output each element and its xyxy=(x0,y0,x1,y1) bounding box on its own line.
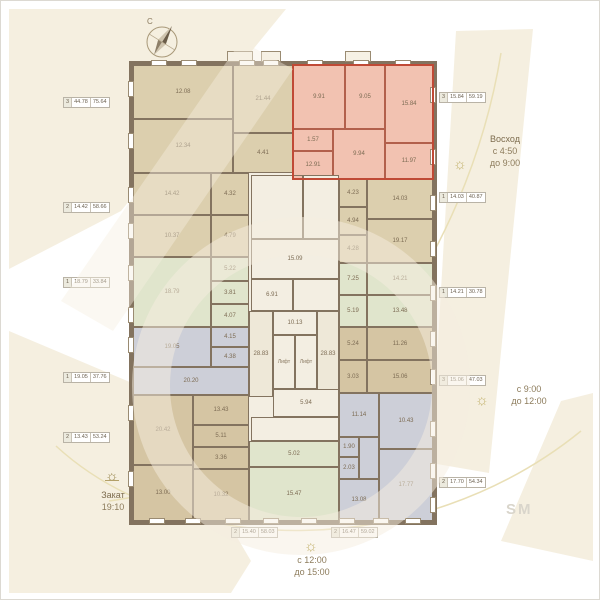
window-mark xyxy=(430,195,436,211)
apt-left-3-room-18.79[interactable]: 18.79 xyxy=(133,257,211,327)
unit-info-chip: 118.7933.84 xyxy=(63,277,110,288)
room-area-label: 19.17 xyxy=(392,238,407,244)
unit-info-cell: 18.79 xyxy=(71,278,90,287)
window-mark xyxy=(128,223,134,239)
window-mark xyxy=(128,265,134,281)
core-room-15.09: 15.09 xyxy=(251,239,339,279)
unit-info-chip: 315.0647.03 xyxy=(439,375,486,386)
apt-bottom-right-room-13.08[interactable]: 13.08 xyxy=(339,479,379,521)
room-area-label: 12.08 xyxy=(175,89,190,95)
window-mark xyxy=(395,60,411,66)
unit-info-cell: 2 xyxy=(64,433,71,442)
unit-info-cell: 13.43 xyxy=(71,433,90,442)
apt-bottom-left-room-13.00[interactable]: 13.00 xyxy=(133,465,193,521)
sunrise-to: до 9:00 xyxy=(469,157,541,169)
apt-bottom-left-room-10.32[interactable]: 10.32 xyxy=(193,469,249,521)
window-mark xyxy=(263,518,279,524)
unit-info-chip: 213.4353.24 xyxy=(63,432,110,443)
apt-left-2-room-4.32[interactable]: 4.32 xyxy=(211,173,249,215)
window-mark xyxy=(225,518,241,524)
room-area-label: 5.11 xyxy=(215,433,226,439)
apt-right-2-room-19.17[interactable]: 19.17 xyxy=(367,219,433,263)
window-mark xyxy=(430,497,436,513)
apt-top-left-room-4.41[interactable]: 4.41 xyxy=(233,133,293,173)
unit-info-cell: 2 xyxy=(332,528,339,537)
unit-info-chip: 114.2130.78 xyxy=(439,287,486,298)
apt-bottom-right-room[interactable] xyxy=(359,437,379,479)
apt-right-4-room-5.24[interactable]: 5.24 xyxy=(339,327,367,360)
unit-info-cell: 15.06 xyxy=(447,376,466,385)
unit-info-cell: 17.70 xyxy=(447,478,466,487)
window-mark xyxy=(239,60,255,66)
apt-right-2-room-14.03[interactable]: 14.03 xyxy=(367,179,433,219)
apt-right-3-room-13.48[interactable]: 13.48 xyxy=(367,295,433,327)
sun-icon: ☼ xyxy=(453,157,467,172)
apt-bottom-right-room-17.77[interactable]: 17.77 xyxy=(379,449,433,521)
unit-info-chip: 344.7875.64 xyxy=(63,97,110,108)
core-room-28.83: 28.83 xyxy=(317,311,339,397)
apt-bottom-left-room-20.42[interactable]: 20.42 xyxy=(133,395,193,465)
core-room-28.83: 28.83 xyxy=(249,311,273,397)
window-mark xyxy=(405,518,421,524)
room-area-label: 10.43 xyxy=(398,418,413,424)
apt-right-2-room-4.94[interactable]: 4.94 xyxy=(339,207,367,235)
core-room-Лифт: Лифт xyxy=(295,335,317,389)
room-area-label: 3.81 xyxy=(224,290,236,296)
apt-bottom-right-room-2.03[interactable]: 2.03 xyxy=(339,457,359,479)
unit-info-cell: 1 xyxy=(440,288,447,297)
sunset-title: Закат xyxy=(85,489,141,501)
unit-info-cell: 47.03 xyxy=(466,376,485,385)
room-area-label: 18.79 xyxy=(164,289,179,295)
unit-info-chip: 215.4058.03 xyxy=(231,527,278,538)
core-room xyxy=(251,417,339,441)
room-area-label: 20.20 xyxy=(183,378,198,384)
window-mark xyxy=(128,81,134,97)
unit-info-chip: 216.4759.02 xyxy=(331,527,378,538)
unit-info-cell: 44.78 xyxy=(71,98,90,107)
apt-left-4-room-19.05[interactable]: 19.05 xyxy=(133,327,211,367)
room-area-label: 28.83 xyxy=(320,351,335,357)
room-area-label: 13.00 xyxy=(155,490,170,496)
unit-info-cell: 40.87 xyxy=(466,193,485,202)
apt-right-2-room-4.23[interactable]: 4.23 xyxy=(339,179,367,207)
brand-watermark: SM xyxy=(506,501,533,518)
window-mark xyxy=(128,133,134,149)
room-area-label: 5.22 xyxy=(224,266,236,272)
window-mark xyxy=(149,518,165,524)
unit-info-cell: 3 xyxy=(440,93,447,102)
core-room-Лифт: Лифт xyxy=(273,335,295,389)
apt-bottom-left-room-3.36[interactable]: 3.36 xyxy=(193,447,249,469)
core-room-5.94: 5.94 xyxy=(273,389,339,417)
room-area-label: 11.26 xyxy=(393,341,408,347)
room-area-label: 4.23 xyxy=(347,190,359,196)
room-area-label: 7.25 xyxy=(347,276,359,282)
unit-info-cell: 14.03 xyxy=(447,193,466,202)
room-area-label: 3.36 xyxy=(215,455,227,461)
unit-info-cell: 54.34 xyxy=(466,478,485,487)
unit-info-cell: 2 xyxy=(440,478,447,487)
window-mark xyxy=(263,60,279,66)
window-mark xyxy=(430,463,436,479)
unit-info-cell: 15.40 xyxy=(239,528,258,537)
apt-left-2-room-10.37[interactable]: 10.37 xyxy=(133,215,211,257)
room-area-label: 13.48 xyxy=(392,308,407,314)
window-mark xyxy=(128,307,134,323)
core-room-6.91: 6.91 xyxy=(251,279,293,311)
window-mark xyxy=(185,518,201,524)
unit-info-chip: 315.8459.19 xyxy=(439,92,486,103)
unit-info-cell: 33.84 xyxy=(90,278,109,287)
window-mark xyxy=(430,331,436,347)
unit-info-cell: 2 xyxy=(64,203,71,212)
room-area-label: 4.07 xyxy=(224,313,236,319)
apt-top-right-highlighted-room-11.97[interactable]: 11.97 xyxy=(385,143,433,179)
apt-left-2-room-14.42[interactable]: 14.42 xyxy=(133,173,211,215)
unit-info-cell: 30.78 xyxy=(466,288,485,297)
room-area-label: 4.32 xyxy=(224,191,236,197)
unit-info-cell: 1 xyxy=(64,373,71,382)
room-area-label: 9.94 xyxy=(353,151,365,157)
window-mark xyxy=(353,60,369,66)
unit-info-chip: 214.4258.66 xyxy=(63,202,110,213)
room-area-label: 12.91 xyxy=(305,162,320,168)
north-label: С xyxy=(147,17,153,26)
unit-info-cell: 58.66 xyxy=(90,203,109,212)
noon-from: с 12:00 xyxy=(276,554,348,566)
unit-info-chip: 119.0537.76 xyxy=(63,372,110,383)
apt-left-3-room-4.07[interactable]: 4.07 xyxy=(211,304,249,327)
unit-info-cell: 15.84 xyxy=(447,93,466,102)
room-area-label: 5.02 xyxy=(288,451,300,457)
unit-info-cell: 75.64 xyxy=(90,98,109,107)
apt-bottom-right-room-1.90[interactable]: 1.90 xyxy=(339,437,359,457)
apt-top-left-room-21.44[interactable]: 21.44 xyxy=(233,65,293,133)
apt-left-4-room-4.15[interactable]: 4.15 xyxy=(211,327,249,347)
apt-top-right-highlighted-room-9.91[interactable]: 9.91 xyxy=(293,65,345,129)
room-area-label: 14.03 xyxy=(392,196,407,202)
room-area-label: 5.24 xyxy=(347,341,359,347)
unit-info-cell: 53.24 xyxy=(90,433,109,442)
window-mark xyxy=(430,285,436,301)
sunset-time: 19:10 xyxy=(85,501,141,513)
core-room xyxy=(251,175,303,239)
unit-info-cell: 58.03 xyxy=(258,528,277,537)
apt-left-2-room-4.79[interactable]: 4.79 xyxy=(211,215,249,257)
apt-top-right-highlighted-room-9.94[interactable]: 9.94 xyxy=(333,129,385,179)
window-mark xyxy=(430,87,436,103)
unit-info-cell: 3 xyxy=(64,98,71,107)
unit-info-cell: 3 xyxy=(440,376,447,385)
apt-top-left-room-12.34[interactable]: 12.34 xyxy=(133,119,233,173)
apt-right-2-room-4.28[interactable]: 4.28 xyxy=(339,235,367,263)
room-area-label: 9.05 xyxy=(359,94,371,100)
room-area-label: 15.84 xyxy=(401,101,416,107)
window-mark xyxy=(373,518,389,524)
unit-info-chip: 114.0340.87 xyxy=(439,192,486,203)
room-area-label: 14.21 xyxy=(392,276,407,282)
room-area-label: 3.03 xyxy=(347,374,359,380)
unit-info-cell: 1 xyxy=(64,278,71,287)
morning-sun-annotation: ☼ с 9:00 до 12:00 xyxy=(497,383,561,407)
room-area-label: 1.90 xyxy=(343,444,355,450)
room-area-label: 6.91 xyxy=(266,292,278,298)
room-area-label: 5.94 xyxy=(300,400,312,406)
sunrise-annotation: ☼ Восход с 4:50 до 9:00 xyxy=(469,133,541,169)
apt-right-3-room-14.21[interactable]: 14.21 xyxy=(367,263,433,295)
window-mark xyxy=(430,369,436,385)
room-area-label: 15.47 xyxy=(286,491,301,497)
unit-info-cell: 14.21 xyxy=(447,288,466,297)
room-area-label: 13.08 xyxy=(351,497,366,503)
window-mark xyxy=(430,149,436,165)
room-area-label: 17.77 xyxy=(398,482,413,488)
apt-bottom-left-room-5.11[interactable]: 5.11 xyxy=(193,425,249,447)
room-area-label: 10.13 xyxy=(287,320,302,326)
room-area-label: 1.57 xyxy=(307,137,319,143)
room-area-label: 14.42 xyxy=(164,191,179,197)
apt-top-left-room-12.08[interactable]: 12.08 xyxy=(133,65,233,119)
window-mark xyxy=(128,187,134,203)
room-area-label: 20.42 xyxy=(155,427,170,433)
core-room xyxy=(303,175,339,239)
apt-top-right-highlighted-room-1.57[interactable]: 1.57 xyxy=(293,129,333,151)
compass-icon xyxy=(139,19,185,65)
apt-right-4-room-11.26[interactable]: 11.26 xyxy=(367,327,433,360)
room-area-label: 4.79 xyxy=(224,233,236,239)
window-mark xyxy=(128,471,134,487)
room-area-label: 15.06 xyxy=(392,374,407,380)
apt-bottom-right-room-10.43[interactable]: 10.43 xyxy=(379,393,433,449)
sun-icon: ☼ xyxy=(475,393,489,408)
room-area-label: Лифт xyxy=(300,360,312,365)
window-mark xyxy=(307,60,323,66)
room-area-label: 10.37 xyxy=(164,233,179,239)
apt-top-right-highlighted-room-15.84[interactable]: 15.84 xyxy=(385,65,433,143)
window-mark xyxy=(301,518,317,524)
room-area-label: 28.83 xyxy=(253,351,268,357)
room-area-label: 5.19 xyxy=(347,308,359,314)
room-area-label: 12.34 xyxy=(175,143,190,149)
room-area-label: 4.38 xyxy=(224,354,236,360)
unit-info-cell: 59.02 xyxy=(358,528,377,537)
room-area-label: Лифт xyxy=(278,360,290,365)
core-room xyxy=(293,279,339,311)
sunset-annotation: ☼ Закат 19:10 xyxy=(85,489,141,513)
unit-info-cell: 37.76 xyxy=(90,373,109,382)
room-area-label: 15.09 xyxy=(287,256,302,262)
apt-right-3-room-7.25[interactable]: 7.25 xyxy=(339,263,367,295)
room-area-label: 13.43 xyxy=(213,407,228,413)
unit-info-cell: 59.19 xyxy=(466,93,485,102)
apt-right-4-room-3.03[interactable]: 3.03 xyxy=(339,360,367,393)
unit-info-cell: 1 xyxy=(440,193,447,202)
room-area-label: 11.14 xyxy=(352,412,367,418)
room-area-label: 4.94 xyxy=(347,218,359,224)
room-area-label: 9.91 xyxy=(313,94,325,100)
apt-bottom-left-room-13.43[interactable]: 13.43 xyxy=(193,395,249,425)
sunrise-title: Восход xyxy=(469,133,541,145)
window-mark xyxy=(430,421,436,437)
unit-info-cell: 19.05 xyxy=(71,373,90,382)
apt-top-right-highlighted-room-9.05[interactable]: 9.05 xyxy=(345,65,385,129)
room-area-label: 10.32 xyxy=(213,492,228,498)
sunset-icon: ☼ xyxy=(105,471,119,481)
morning-to: до 12:00 xyxy=(497,395,561,407)
apt-right-4-room-15.06[interactable]: 15.06 xyxy=(367,360,433,393)
room-area-label: 2.03 xyxy=(343,465,355,471)
apt-bottom-center-room-5.02[interactable]: 5.02 xyxy=(249,441,339,467)
window-mark xyxy=(339,518,355,524)
noon-sun-annotation: ☼ с 12:00 до 15:00 xyxy=(276,554,348,578)
core-room-10.13: 10.13 xyxy=(273,311,317,335)
sun-icon: ☼ xyxy=(304,539,318,554)
unit-info-chip: 217.7054.34 xyxy=(439,477,486,488)
floorplan-page: С 12.0812.3421.444.419.919.0515.841.5712… xyxy=(0,0,600,600)
apt-bottom-right-room-11.14[interactable]: 11.14 xyxy=(339,393,379,437)
apt-left-4-room-20.20[interactable]: 20.20 xyxy=(133,367,249,395)
room-area-label: 4.28 xyxy=(347,246,359,252)
room-area-label: 11.97 xyxy=(402,158,417,164)
noon-to: до 15:00 xyxy=(276,566,348,578)
unit-info-cell: 2 xyxy=(232,528,239,537)
unit-info-cell: 14.42 xyxy=(71,203,90,212)
unit-info-cell: 16.47 xyxy=(339,528,358,537)
window-mark xyxy=(128,337,134,353)
room-area-label: 21.44 xyxy=(255,96,270,102)
morning-from: с 9:00 xyxy=(497,383,561,395)
apt-left-3-room-5.22[interactable]: 5.22 xyxy=(211,257,249,281)
room-area-label: 4.15 xyxy=(224,334,236,340)
apt-bottom-center-room-15.47[interactable]: 15.47 xyxy=(249,467,339,521)
sunrise-from: с 4:50 xyxy=(469,145,541,157)
apt-left-3-room-3.81[interactable]: 3.81 xyxy=(211,281,249,304)
apt-right-3-room-5.19[interactable]: 5.19 xyxy=(339,295,367,327)
window-mark xyxy=(430,241,436,257)
apt-left-4-room-4.38[interactable]: 4.38 xyxy=(211,347,249,367)
room-area-label: 19.05 xyxy=(164,344,179,350)
room-area-label: 4.41 xyxy=(257,150,269,156)
window-mark xyxy=(128,405,134,421)
